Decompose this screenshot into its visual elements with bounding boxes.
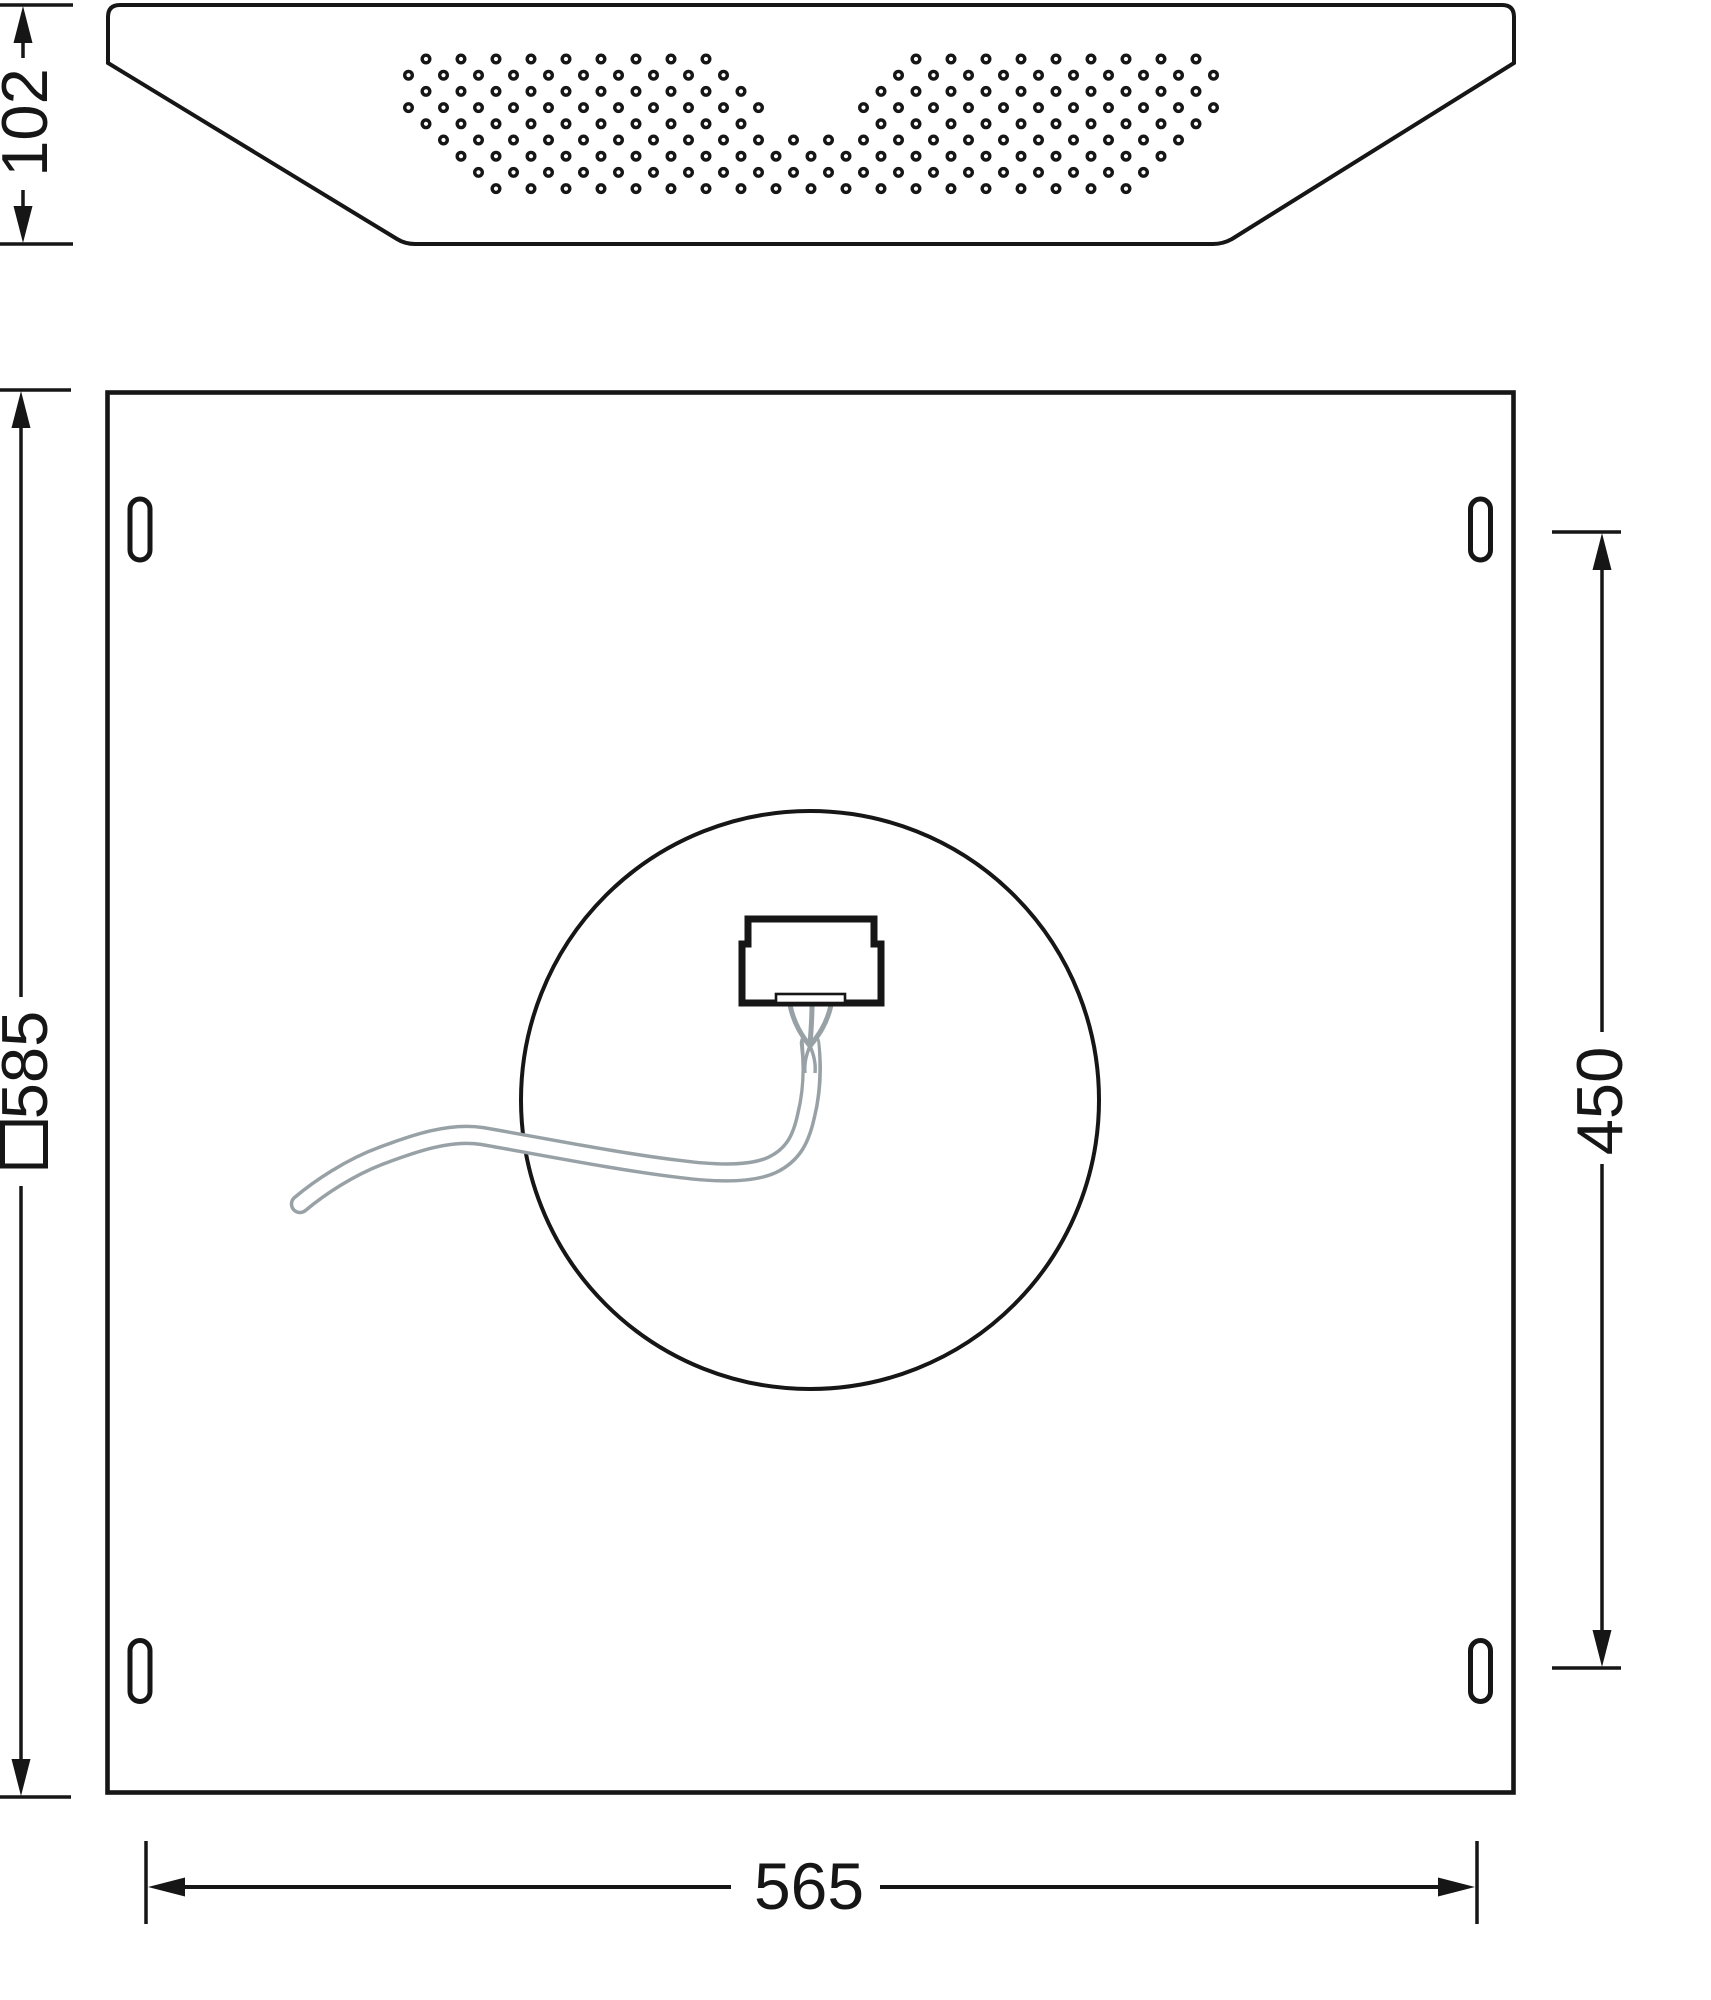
svg-text:102: 102 bbox=[0, 68, 61, 176]
svg-text:450: 450 bbox=[1563, 1047, 1636, 1155]
svg-text:565: 565 bbox=[754, 1849, 864, 1923]
svg-text:585: 585 bbox=[0, 1011, 61, 1119]
